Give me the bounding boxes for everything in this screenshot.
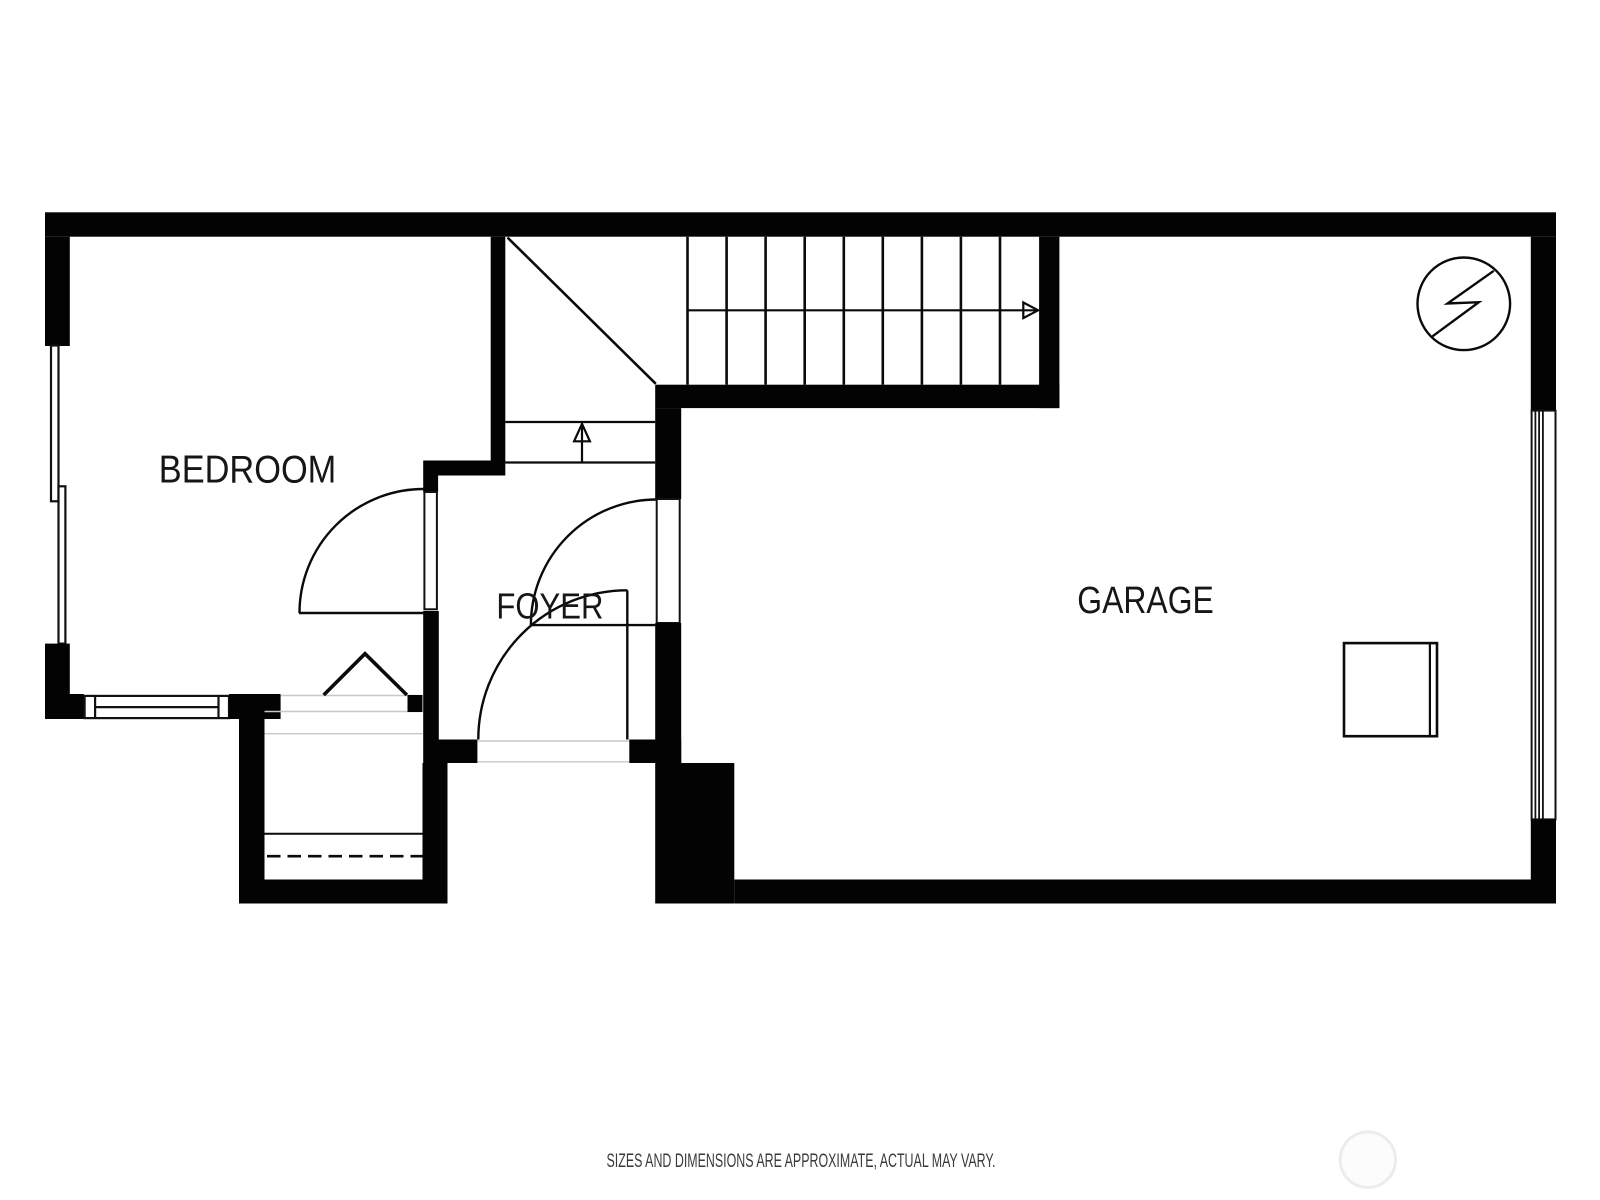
svg-text:SIZES AND DIMENSIONS ARE APPRO: SIZES AND DIMENSIONS ARE APPROXIMATE, AC… bbox=[607, 1151, 996, 1172]
svg-text:FOYER: FOYER bbox=[496, 585, 603, 626]
svg-text:GARAGE: GARAGE bbox=[1077, 580, 1214, 622]
svg-text:BEDROOM: BEDROOM bbox=[159, 449, 336, 492]
